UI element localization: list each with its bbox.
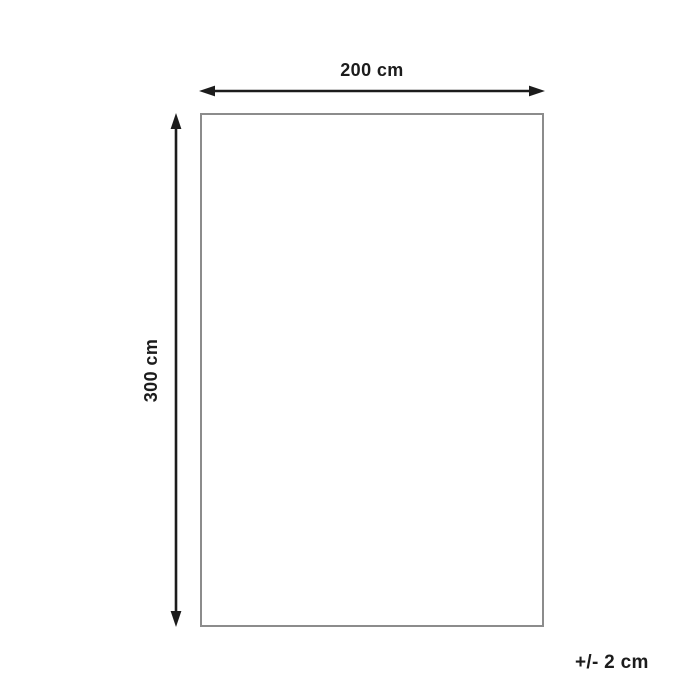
width-dimension-arrow-icon — [199, 84, 545, 98]
height-dimension-label: 300 cm — [142, 338, 163, 401]
dimension-diagram: 200 cm 300 cm +/- 2 cm — [0, 0, 700, 700]
product-outline-rectangle — [200, 113, 544, 627]
height-dimension-label-box: 300 cm — [136, 113, 168, 627]
tolerance-label: +/- 2 cm — [575, 652, 649, 674]
width-dimension-label: 200 cm — [199, 60, 545, 81]
height-dimension-arrow-icon — [169, 113, 183, 627]
